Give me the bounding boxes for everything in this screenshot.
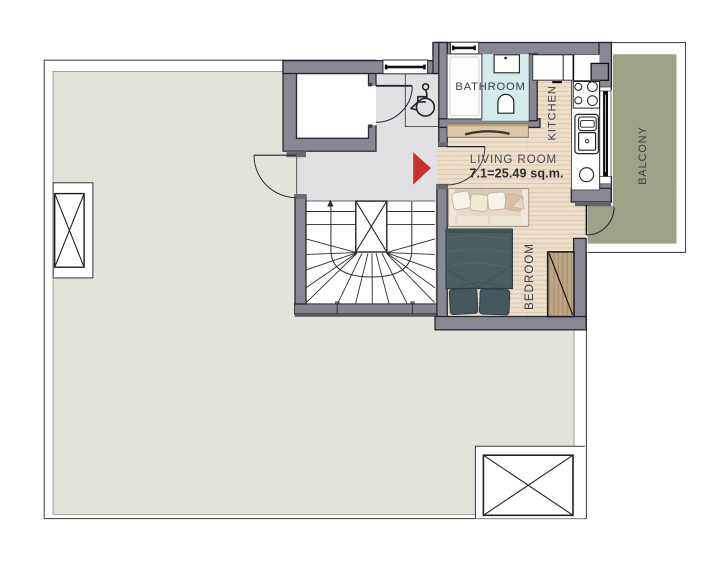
svg-text:BATHROOM: BATHROOM	[455, 81, 525, 93]
svg-text:BALCONY: BALCONY	[637, 126, 649, 185]
svg-text:BEDROOM: BEDROOM	[523, 243, 536, 310]
svg-text:LIVING ROOM: LIVING ROOM	[470, 153, 557, 166]
svg-text:KITCHEN: KITCHEN	[547, 85, 559, 140]
svg-text:7.1=25.49 sq.m.: 7.1=25.49 sq.m.	[469, 167, 563, 181]
